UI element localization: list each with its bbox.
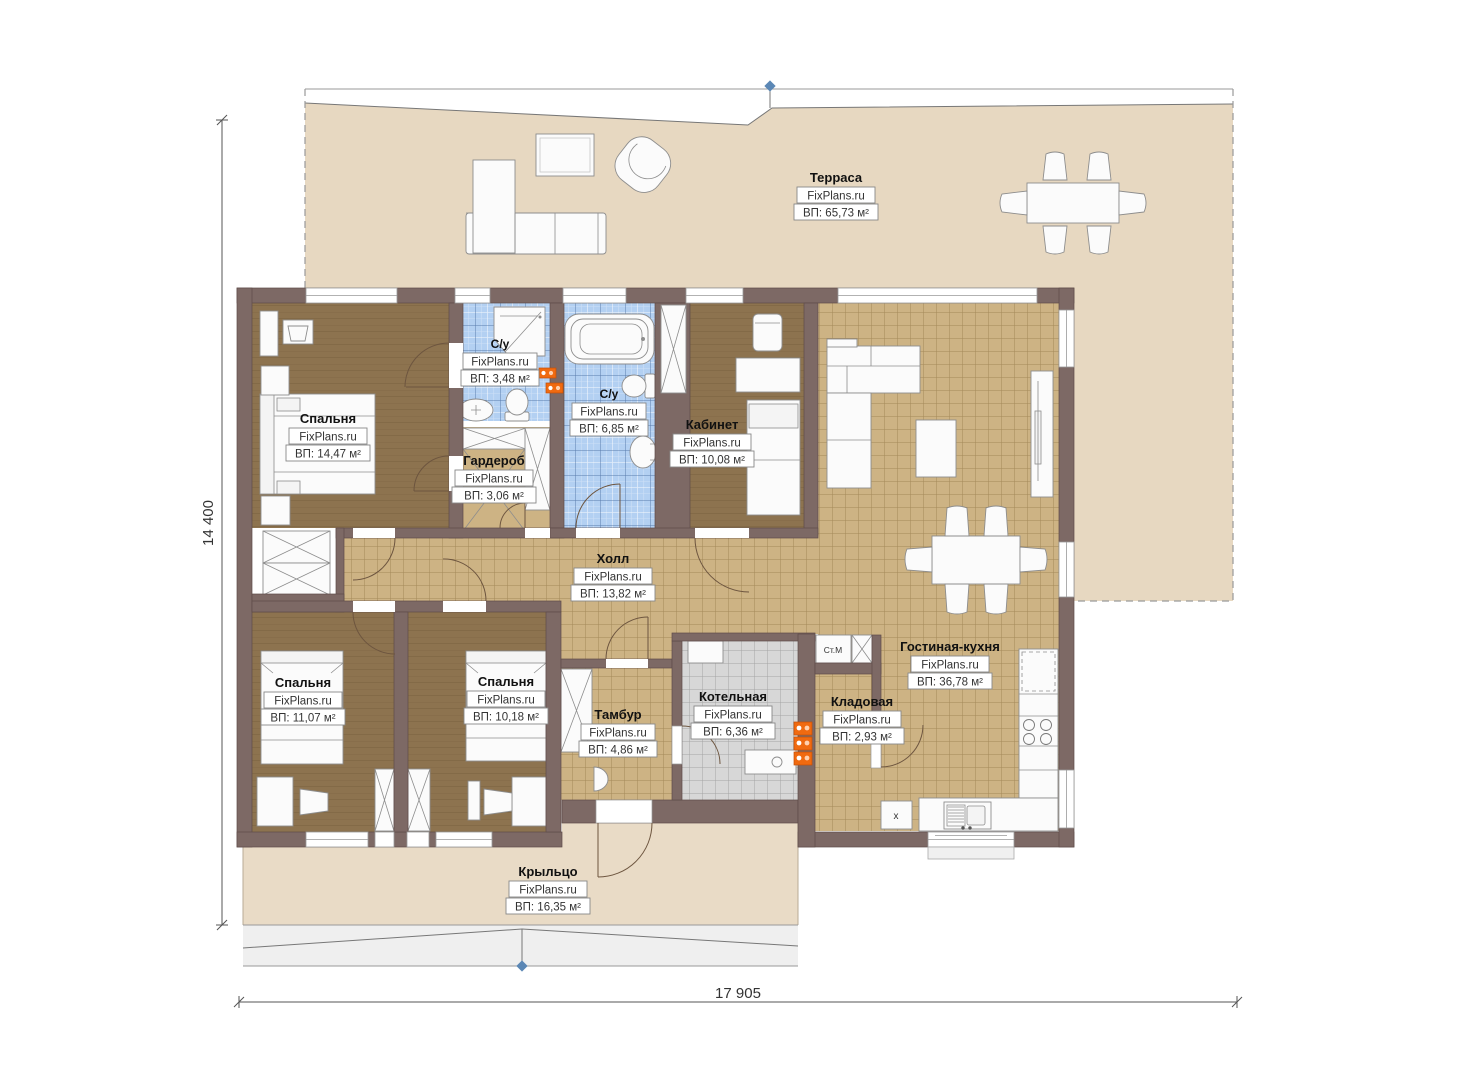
- svg-text:FixPlans.ru: FixPlans.ru: [274, 696, 332, 708]
- svg-text:Котельная: Котельная: [699, 689, 767, 704]
- svg-text:Гостиная-кухня: Гостиная-кухня: [900, 639, 1000, 654]
- svg-text:14 400: 14 400: [200, 500, 217, 546]
- svg-text:FixPlans.ru: FixPlans.ru: [519, 885, 577, 897]
- svg-text:Спальня: Спальня: [275, 675, 331, 690]
- svg-text:Гардероб: Гардероб: [463, 453, 524, 468]
- svg-text:ВП: 14,47 м²: ВП: 14,47 м²: [295, 449, 361, 461]
- svg-text:Крыльцо: Крыльцо: [518, 864, 577, 879]
- svg-text:FixPlans.ru: FixPlans.ru: [465, 474, 523, 486]
- svg-text:ВП: 36,78 м²: ВП: 36,78 м²: [917, 677, 983, 689]
- svg-text:17 905: 17 905: [715, 985, 761, 1002]
- svg-text:ВП: 3,48 м²: ВП: 3,48 м²: [470, 374, 530, 386]
- svg-text:Спальня: Спальня: [300, 411, 356, 426]
- svg-text:ВП: 13,82 м²: ВП: 13,82 м²: [580, 589, 646, 601]
- svg-text:Спальня: Спальня: [478, 674, 534, 689]
- svg-text:Кабинет: Кабинет: [686, 417, 739, 432]
- svg-text:ВП: 3,06 м²: ВП: 3,06 м²: [464, 491, 524, 503]
- svg-text:ВП: 10,08 м²: ВП: 10,08 м²: [679, 455, 745, 467]
- svg-text:Ст.М: Ст.М: [824, 645, 843, 655]
- svg-text:ВП: 10,18 м²: ВП: 10,18 м²: [473, 712, 539, 724]
- svg-text:FixPlans.ru: FixPlans.ru: [589, 728, 647, 740]
- svg-text:С/у: С/у: [600, 387, 619, 401]
- svg-text:ВП: 11,07 м²: ВП: 11,07 м²: [270, 713, 335, 725]
- svg-text:С/у: С/у: [491, 337, 510, 351]
- svg-text:x: x: [894, 811, 899, 822]
- svg-text:ВП: 4,86 м²: ВП: 4,86 м²: [588, 745, 648, 757]
- svg-text:FixPlans.ru: FixPlans.ru: [580, 407, 638, 419]
- svg-text:ВП: 6,85 м²: ВП: 6,85 м²: [579, 424, 639, 436]
- svg-text:FixPlans.ru: FixPlans.ru: [807, 191, 865, 203]
- svg-text:FixPlans.ru: FixPlans.ru: [471, 357, 529, 369]
- svg-text:ВП: 6,36 м²: ВП: 6,36 м²: [703, 727, 763, 739]
- svg-text:FixPlans.ru: FixPlans.ru: [584, 572, 642, 584]
- svg-text:Холл: Холл: [597, 551, 630, 566]
- svg-text:FixPlans.ru: FixPlans.ru: [704, 710, 762, 722]
- svg-text:ВП: 65,73 м²: ВП: 65,73 м²: [803, 208, 869, 220]
- svg-text:Кладовая: Кладовая: [831, 694, 893, 709]
- svg-text:FixPlans.ru: FixPlans.ru: [299, 432, 357, 444]
- svg-text:Тамбур: Тамбур: [594, 707, 641, 722]
- svg-text:FixPlans.ru: FixPlans.ru: [477, 695, 535, 707]
- svg-text:Терраса: Терраса: [810, 170, 863, 185]
- svg-text:FixPlans.ru: FixPlans.ru: [683, 438, 741, 450]
- svg-text:ВП: 16,35 м²: ВП: 16,35 м²: [515, 902, 581, 914]
- svg-text:FixPlans.ru: FixPlans.ru: [833, 715, 891, 727]
- svg-text:FixPlans.ru: FixPlans.ru: [921, 660, 979, 672]
- svg-text:ВП: 2,93 м²: ВП: 2,93 м²: [832, 732, 892, 744]
